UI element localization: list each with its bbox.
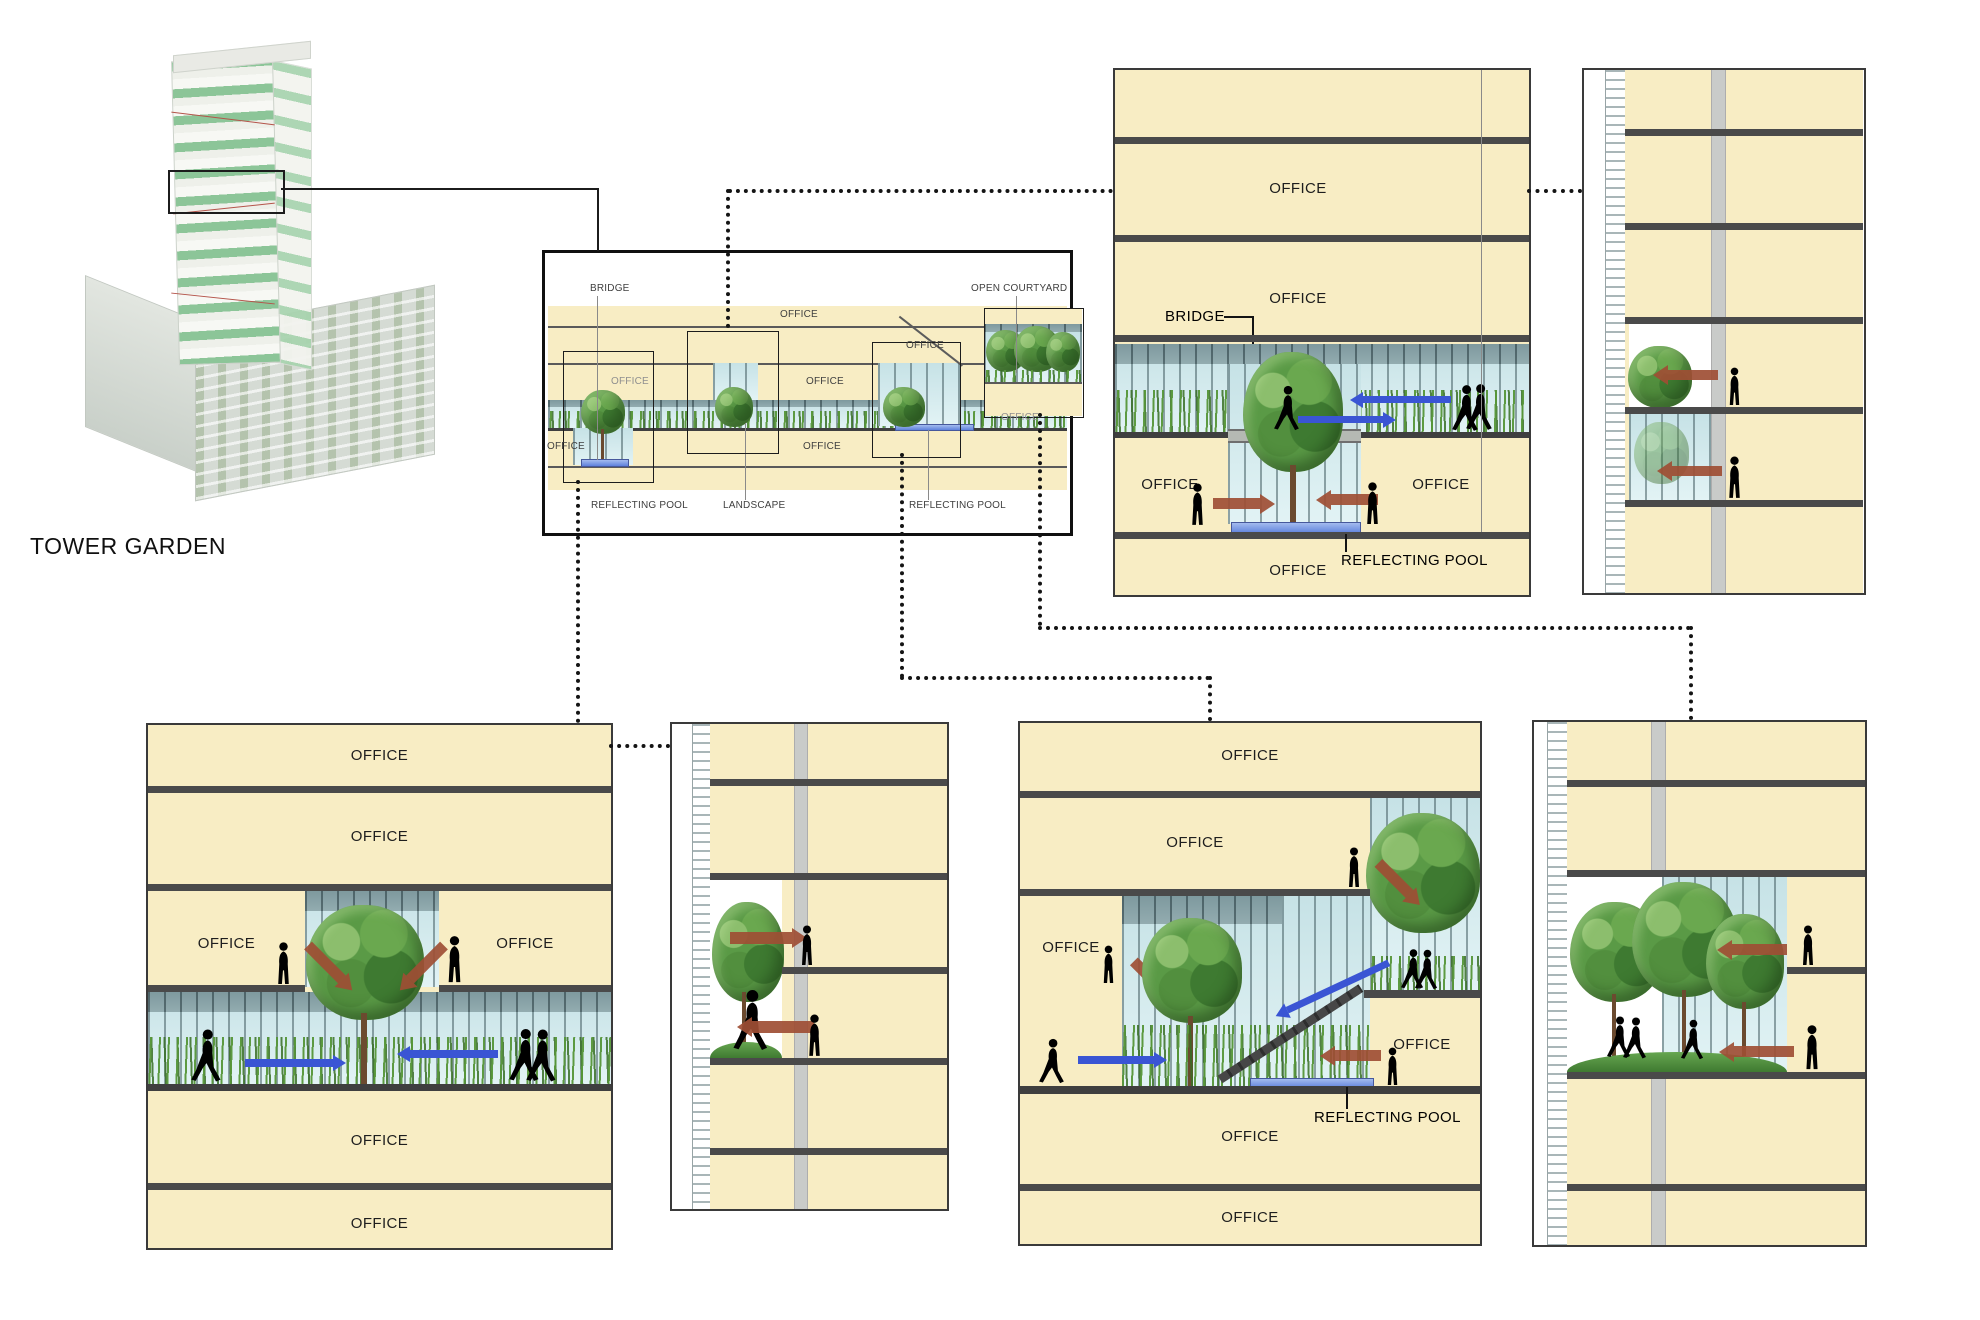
tower-callout-connector — [597, 188, 599, 251]
office-label: OFFICE — [1115, 290, 1481, 307]
tree-trunk — [1290, 465, 1296, 522]
overview-landscape-label: LANDSCAPE — [723, 500, 785, 511]
view-arrow-left-icon — [1335, 1050, 1381, 1061]
person-icon — [805, 1014, 824, 1058]
tree-icon — [1706, 914, 1784, 1009]
overview-callout-box-1 — [563, 351, 654, 483]
office-label: OFFICE — [148, 828, 611, 845]
person-icon — [1799, 925, 1817, 967]
person-icon — [1726, 367, 1743, 407]
person-icon — [1465, 382, 1494, 432]
person-icon — [1622, 1016, 1648, 1060]
view-arrow-left-icon — [1672, 466, 1722, 476]
office-label: OFFICE — [1020, 834, 1370, 851]
overview-office-label: OFFICE — [1001, 412, 1039, 423]
person-icon — [190, 1027, 223, 1084]
person-icon — [1273, 384, 1301, 432]
flow-arrow-left-icon — [1363, 396, 1451, 403]
office-label: OFFICE — [1020, 1128, 1480, 1145]
person-icon — [1414, 948, 1439, 991]
diagram-canvas: TOWER GARDEN — [0, 0, 1980, 1320]
person-icon — [1345, 847, 1363, 889]
overview-bridge-label: BRIDGE — [590, 283, 630, 294]
tree-trunk — [361, 1013, 367, 1084]
facade-louver-strip — [1605, 70, 1627, 593]
overview-reflecting-pool-label: REFLECTING POOL — [909, 500, 1006, 511]
bridge-leader — [1224, 316, 1252, 318]
person-icon — [1680, 1018, 1705, 1061]
view-arrow-left-icon — [1668, 370, 1718, 380]
office-label: OFFICE — [1020, 747, 1480, 764]
overview-office-label: OFFICE — [547, 441, 585, 452]
view-arrow-left-icon — [1732, 944, 1787, 955]
overview-open-courtyard-label: OPEN COURTYARD — [971, 283, 1067, 294]
dotted-connector — [900, 676, 1210, 680]
flow-arrow-right-icon — [1078, 1056, 1154, 1064]
overview-callout-box-2 — [687, 331, 779, 454]
overview-callout-box-4 — [984, 308, 1084, 418]
overview-callout-box-3 — [872, 342, 961, 458]
overview-office-label: OFFICE — [611, 376, 649, 387]
office-label: OFFICE — [1115, 562, 1481, 579]
dotted-connector — [576, 480, 580, 723]
tower-callout-connector — [281, 188, 597, 190]
overview-office-label: OFFICE — [803, 441, 841, 452]
office-label: OFFICE — [1115, 476, 1225, 493]
page-title: TOWER GARDEN — [30, 533, 226, 560]
dotted-connector — [726, 189, 730, 328]
structure-core-column — [1711, 70, 1726, 593]
facade-louver-strip — [1547, 722, 1569, 1245]
tower-3d-view — [85, 40, 455, 510]
office-label: OFFICE — [148, 1132, 611, 1149]
section-detail-bottom-mid: OFFICE OFFICE OFFICE OFFICE REFLECTING — [1018, 721, 1482, 1246]
section-detail-top-right: OFFICE OFFICE BRIDGE OFFICE OFFICE REFLE… — [1113, 68, 1531, 597]
pool-leader — [1346, 1087, 1348, 1109]
bridge-label: BRIDGE — [1165, 308, 1225, 325]
office-label: OFFICE — [1361, 476, 1521, 493]
tree-icon — [1142, 918, 1242, 1023]
flow-arrow-right-icon — [1298, 416, 1383, 423]
office-label: OFFICE — [1115, 180, 1481, 197]
dotted-connector — [1527, 189, 1582, 193]
overview-office-label: OFFICE — [780, 309, 818, 320]
person-icon — [798, 925, 816, 967]
section-detail-facade-top-right — [1582, 68, 1866, 595]
office-label: OFFICE — [1364, 1036, 1480, 1053]
reflecting-pool-label: REFLECTING POOL — [1314, 1109, 1461, 1126]
dotted-connector — [728, 189, 1113, 193]
person-icon — [1038, 1037, 1066, 1085]
person-icon — [1188, 483, 1207, 527]
dotted-connector — [609, 744, 670, 748]
office-label: OFFICE — [1020, 1209, 1480, 1226]
facade-louver-strip — [692, 724, 712, 1209]
view-arrow-right-icon — [1213, 498, 1260, 509]
person-icon — [1384, 1047, 1401, 1087]
section-detail-facade-bottom-mid-left — [670, 722, 949, 1211]
tower-callout-box — [168, 170, 285, 214]
pool-leader — [1345, 534, 1347, 552]
flow-arrow-left-icon — [410, 1050, 498, 1058]
view-arrow-left-icon — [1734, 1046, 1794, 1057]
dotted-connector — [1038, 626, 1691, 630]
dotted-connector — [900, 453, 904, 678]
section-detail-facade-bottom-right — [1532, 720, 1867, 1247]
flow-arrow-right-icon — [245, 1059, 333, 1067]
person-icon — [1802, 1024, 1822, 1072]
office-label: OFFICE — [148, 747, 611, 764]
person-icon — [1100, 945, 1117, 985]
person-icon — [274, 941, 293, 987]
dotted-connector — [1038, 413, 1042, 626]
dotted-connector — [1208, 676, 1212, 721]
person-icon — [444, 935, 465, 985]
person-icon — [525, 1027, 558, 1084]
view-arrow-right-icon — [730, 932, 792, 944]
overview-reflecting-pool-label: REFLECTING POOL — [591, 500, 688, 511]
overview-office-label: OFFICE — [806, 376, 844, 387]
office-label: OFFICE — [148, 1215, 611, 1232]
dotted-connector — [1689, 626, 1693, 720]
section-detail-bottom-left: OFFICE OFFICE OFFICE OFFICE OFFICE OFFIC… — [146, 723, 613, 1250]
overview-section-panel: BRIDGE OFFICE OPEN COURTYARD OFFICE OFFI… — [542, 250, 1073, 536]
overview-office-label: OFFICE — [906, 340, 944, 351]
person-icon — [1363, 481, 1382, 527]
person-icon — [1725, 456, 1744, 500]
